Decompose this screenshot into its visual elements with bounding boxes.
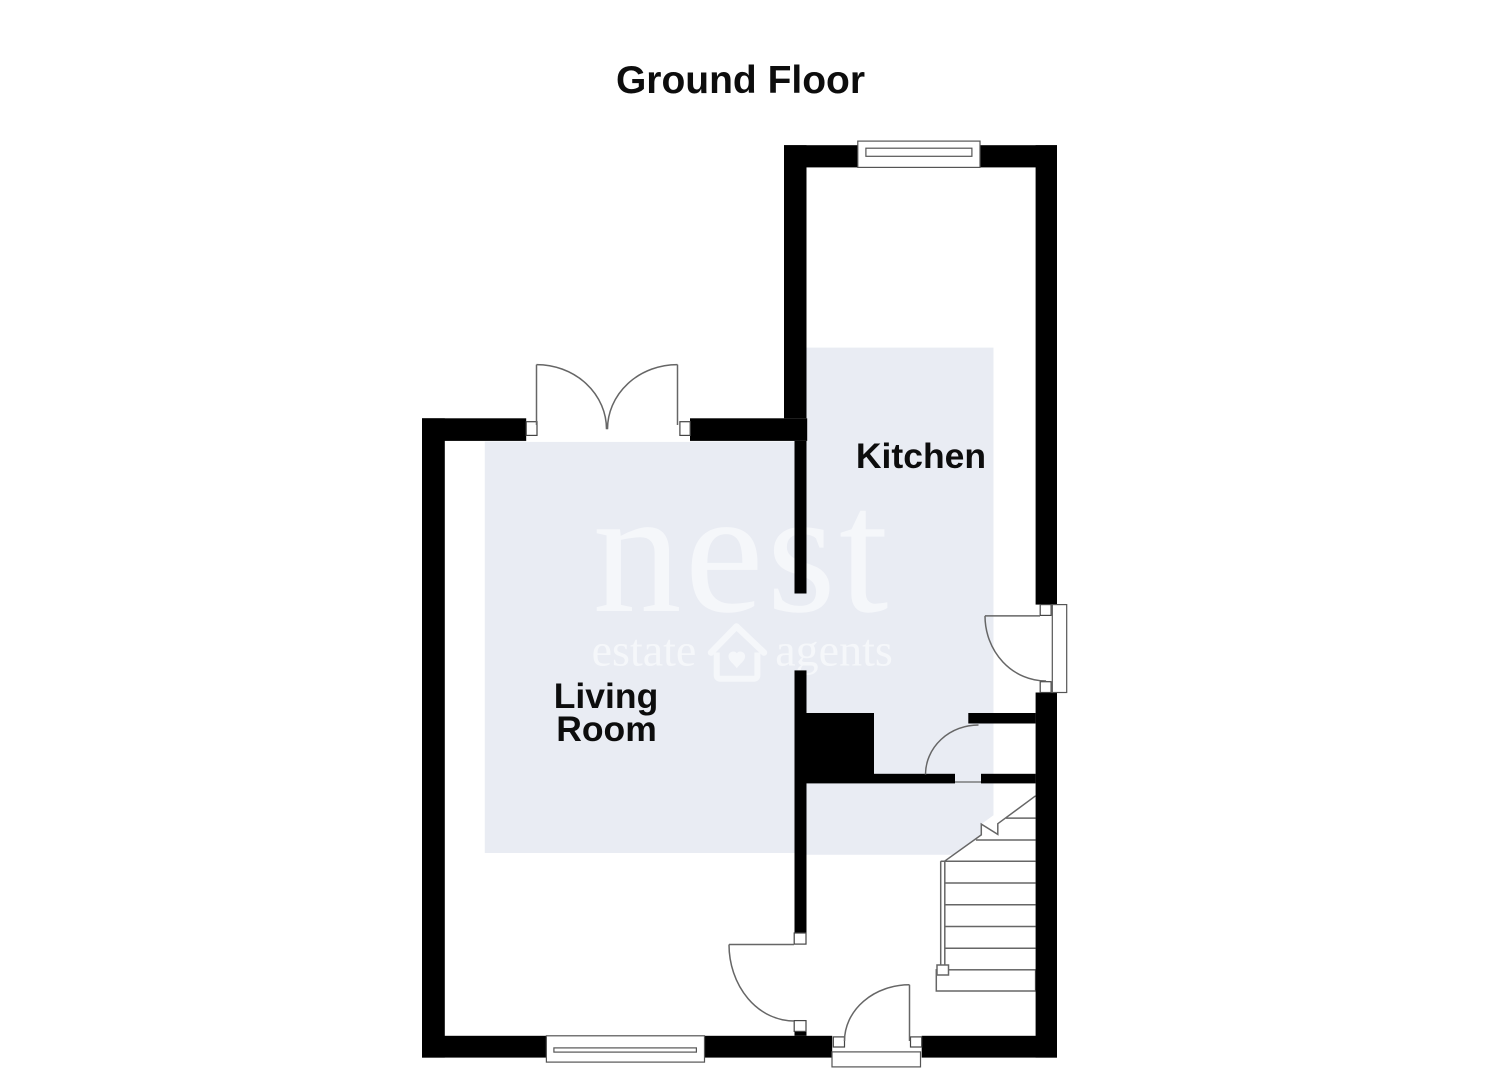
svg-text:nest: nest [593,452,892,650]
svg-text:Ground Floor: Ground Floor [616,59,865,102]
svg-text:Kitchen: Kitchen [856,436,986,476]
svg-text:agents: agents [775,625,893,676]
svg-text:Room: Room [556,709,657,749]
svg-text:estate: estate [592,625,697,676]
